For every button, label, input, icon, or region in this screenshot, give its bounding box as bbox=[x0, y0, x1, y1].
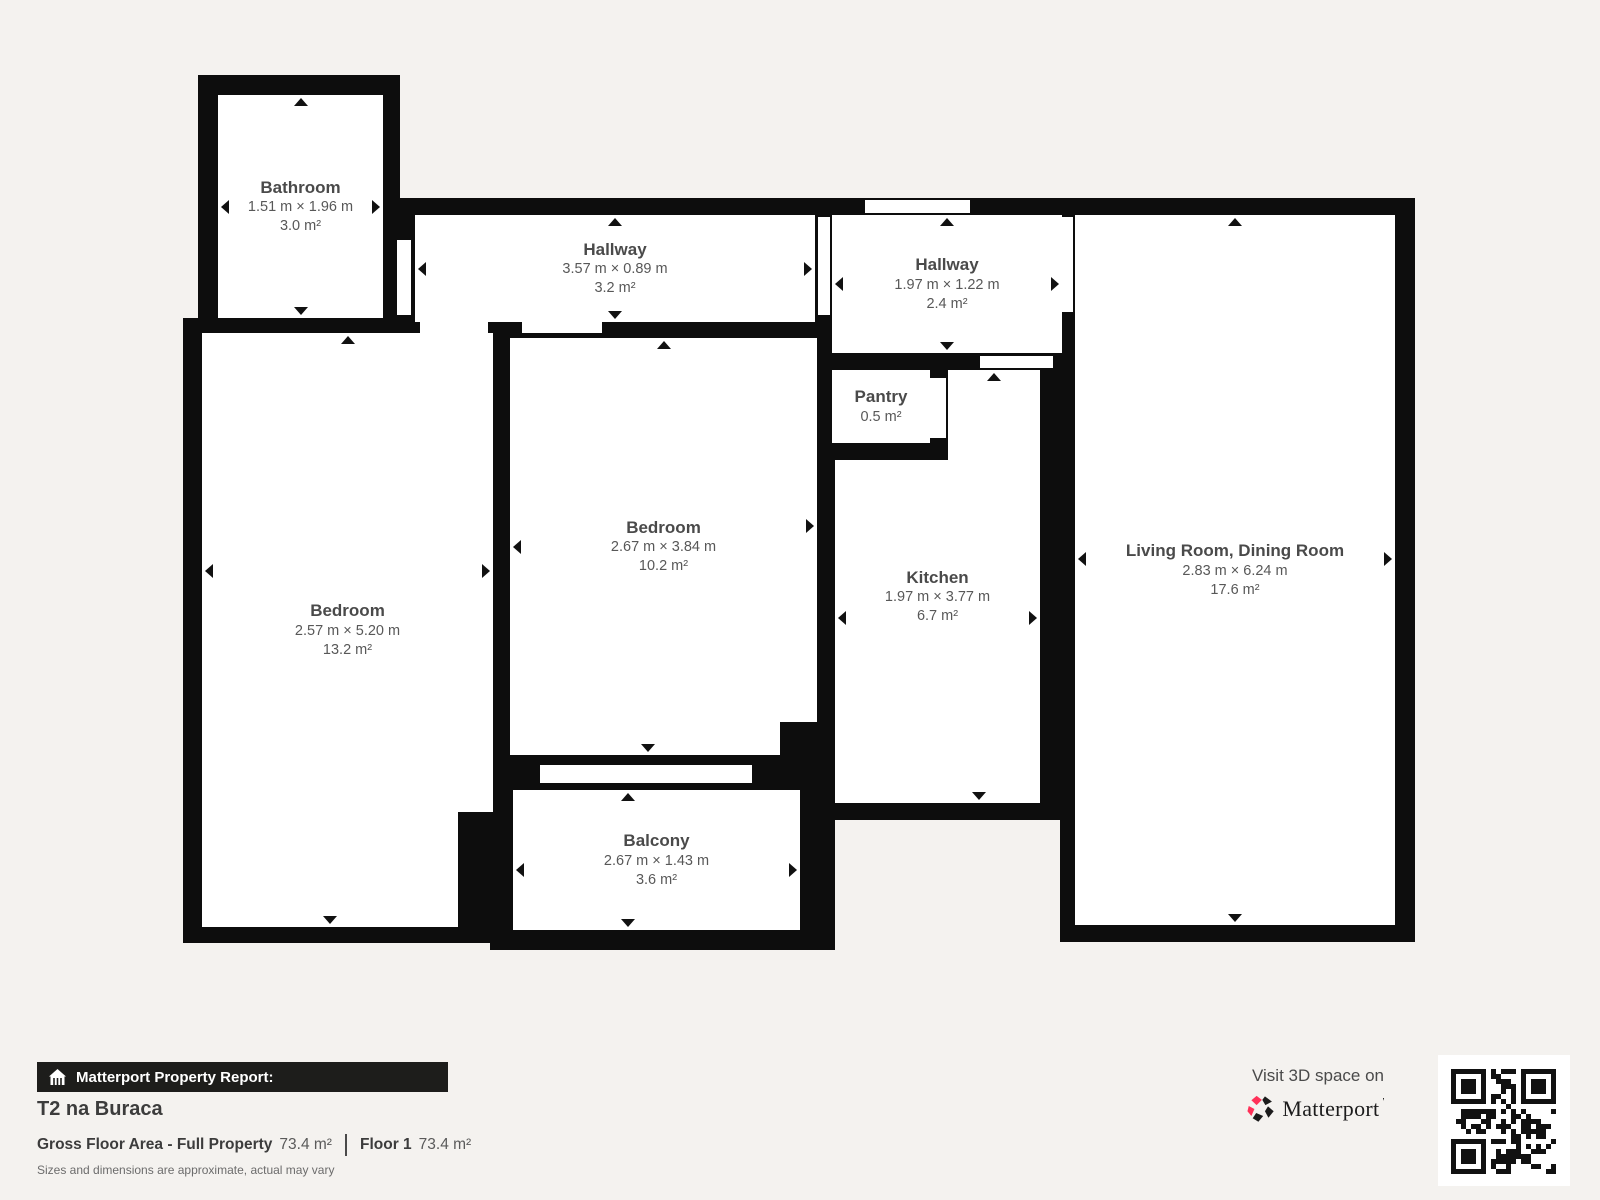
room-label: Hallway 3.57 m × 0.89 m 3.2 m² bbox=[562, 239, 667, 299]
door-opening bbox=[818, 217, 830, 315]
room-label: Bedroom 2.67 m × 3.84 m 10.2 m² bbox=[611, 517, 716, 577]
dimension-arrow bbox=[608, 218, 622, 226]
door-opening bbox=[930, 378, 946, 438]
door-opening bbox=[865, 200, 970, 213]
room-area: 2.4 m² bbox=[894, 295, 999, 314]
floor-value: 73.4 m² bbox=[419, 1136, 472, 1154]
dimension-arrow bbox=[372, 200, 380, 214]
door-opening bbox=[420, 322, 488, 333]
dimension-arrow bbox=[205, 564, 213, 578]
room-area: 10.2 m² bbox=[611, 557, 716, 576]
door-opening bbox=[1062, 217, 1073, 312]
room-name: Pantry bbox=[855, 386, 908, 407]
room-label: Living Room, Dining Room 2.83 m × 6.24 m… bbox=[1126, 540, 1344, 600]
room-name: Living Room, Dining Room bbox=[1126, 540, 1344, 561]
dimension-arrow bbox=[294, 98, 308, 106]
dimension-arrow bbox=[1384, 552, 1392, 566]
room-bathroom: Bathroom 1.51 m × 1.96 m 3.0 m² bbox=[218, 95, 383, 318]
trademark-mark: ’ bbox=[1382, 1098, 1384, 1108]
room-area: 0.5 m² bbox=[855, 408, 908, 427]
dimension-arrow bbox=[1228, 218, 1242, 226]
wall-notch bbox=[780, 722, 817, 755]
room-hallway-2: Hallway 1.97 m × 1.22 m 2.4 m² bbox=[832, 215, 1062, 353]
room-name: Bathroom bbox=[248, 177, 353, 198]
dimension-arrow bbox=[1029, 611, 1037, 625]
room-label: Bathroom 1.51 m × 1.96 m 3.0 m² bbox=[248, 177, 353, 237]
dimension-arrow bbox=[940, 218, 954, 226]
dimension-arrow bbox=[1228, 914, 1242, 922]
room-area: 13.2 m² bbox=[295, 641, 400, 660]
dimension-arrow bbox=[482, 564, 490, 578]
floor-area-metrics: Gross Floor Area - Full Property 73.4 m²… bbox=[37, 1134, 471, 1156]
room-label: Bedroom 2.57 m × 5.20 m 13.2 m² bbox=[295, 600, 400, 660]
metrics-divider bbox=[345, 1134, 347, 1156]
room-name: Hallway bbox=[562, 239, 667, 260]
room-name: Kitchen bbox=[885, 567, 990, 588]
room-area: 3.2 m² bbox=[562, 279, 667, 298]
dimension-arrow bbox=[294, 307, 308, 315]
room-bedroom-left: Bedroom 2.57 m × 5.20 m 13.2 m² bbox=[202, 333, 493, 927]
room-dimensions: 2.67 m × 1.43 m bbox=[604, 852, 709, 871]
dimension-arrow bbox=[621, 919, 635, 927]
room-dimensions: 2.67 m × 3.84 m bbox=[611, 538, 716, 557]
room-label: Kitchen 1.97 m × 3.77 m 6.7 m² bbox=[885, 567, 990, 627]
room-bedroom-middle: Bedroom 2.67 m × 3.84 m 10.2 m² bbox=[510, 338, 817, 755]
room-balcony: Balcony 2.67 m × 1.43 m 3.6 m² bbox=[513, 790, 800, 930]
room-label: Hallway 1.97 m × 1.22 m 2.4 m² bbox=[894, 254, 999, 314]
dimension-arrow bbox=[972, 792, 986, 800]
wall-notch bbox=[458, 812, 493, 927]
door-opening bbox=[397, 240, 411, 315]
dimension-arrow bbox=[789, 863, 797, 877]
matterport-wordmark: Matterport bbox=[1282, 1096, 1379, 1122]
dimension-arrow bbox=[341, 336, 355, 344]
property-report-page: Bathroom 1.51 m × 1.96 m 3.0 m² Hallway … bbox=[0, 0, 1600, 1200]
report-bar-label: Matterport Property Report: bbox=[76, 1069, 274, 1086]
gross-floor-area-label: Gross Floor Area - Full Property bbox=[37, 1136, 272, 1154]
room-area: 3.6 m² bbox=[604, 871, 709, 890]
dimension-arrow bbox=[221, 200, 229, 214]
matterport-pinwheel-icon bbox=[1247, 1095, 1275, 1123]
room-dimensions: 1.51 m × 1.96 m bbox=[248, 198, 353, 217]
room-area: 3.0 m² bbox=[248, 217, 353, 236]
door-opening bbox=[980, 356, 1053, 368]
door-opening bbox=[540, 765, 752, 783]
qr-code bbox=[1451, 1069, 1556, 1174]
floor-label: Floor 1 bbox=[360, 1136, 412, 1154]
room-dimensions: 3.57 m × 0.89 m bbox=[562, 260, 667, 279]
room-dimensions: 1.97 m × 3.77 m bbox=[885, 588, 990, 607]
room-dimensions: 2.83 m × 6.24 m bbox=[1126, 562, 1344, 581]
disclaimer-text: Sizes and dimensions are approximate, ac… bbox=[37, 1163, 334, 1177]
dimension-arrow bbox=[1078, 552, 1086, 566]
room-area: 6.7 m² bbox=[885, 607, 990, 626]
dimension-arrow bbox=[804, 262, 812, 276]
dimension-arrow bbox=[621, 793, 635, 801]
room-label: Pantry 0.5 m² bbox=[855, 386, 908, 426]
dimension-arrow bbox=[940, 342, 954, 350]
room-area: 17.6 m² bbox=[1126, 581, 1344, 600]
visit-3d-space-text: Visit 3D space on bbox=[1240, 1066, 1396, 1086]
dimension-arrow bbox=[641, 744, 655, 752]
room-label: Balcony 2.67 m × 1.43 m 3.6 m² bbox=[604, 830, 709, 890]
room-hallway-1: Hallway 3.57 m × 0.89 m 3.2 m² bbox=[415, 215, 815, 322]
gross-floor-area-value: 73.4 m² bbox=[279, 1136, 332, 1154]
dimension-arrow bbox=[657, 341, 671, 349]
dimension-arrow bbox=[1051, 277, 1059, 291]
property-title: T2 na Buraca bbox=[37, 1098, 163, 1121]
dimension-arrow bbox=[838, 611, 846, 625]
dimension-arrow bbox=[418, 262, 426, 276]
door-opening bbox=[522, 322, 602, 333]
matterport-promo[interactable]: Visit 3D space on Matterport’ bbox=[1240, 1066, 1396, 1123]
room-kitchen-upper bbox=[948, 370, 1040, 462]
dimension-arrow bbox=[323, 916, 337, 924]
room-name: Bedroom bbox=[295, 600, 400, 621]
room-dimensions: 2.57 m × 5.20 m bbox=[295, 622, 400, 641]
room-name: Bedroom bbox=[611, 517, 716, 538]
room-dimensions: 1.97 m × 1.22 m bbox=[894, 276, 999, 295]
dimension-arrow bbox=[835, 277, 843, 291]
report-header-bar: Matterport Property Report: bbox=[37, 1062, 448, 1092]
room-name: Balcony bbox=[604, 830, 709, 851]
qr-code-panel bbox=[1438, 1055, 1570, 1186]
dimension-arrow bbox=[516, 863, 524, 877]
dimension-arrow bbox=[513, 540, 521, 554]
dimension-arrow bbox=[608, 311, 622, 319]
room-pantry: Pantry 0.5 m² bbox=[832, 370, 930, 443]
matterport-logo: Matterport’ bbox=[1240, 1095, 1396, 1123]
house-icon bbox=[49, 1069, 66, 1085]
room-living-dining: Living Room, Dining Room 2.83 m × 6.24 m… bbox=[1075, 215, 1395, 925]
room-name: Hallway bbox=[894, 254, 999, 275]
dimension-arrow bbox=[987, 373, 1001, 381]
dimension-arrow bbox=[806, 519, 814, 533]
room-kitchen: Kitchen 1.97 m × 3.77 m 6.7 m² bbox=[835, 460, 1040, 803]
